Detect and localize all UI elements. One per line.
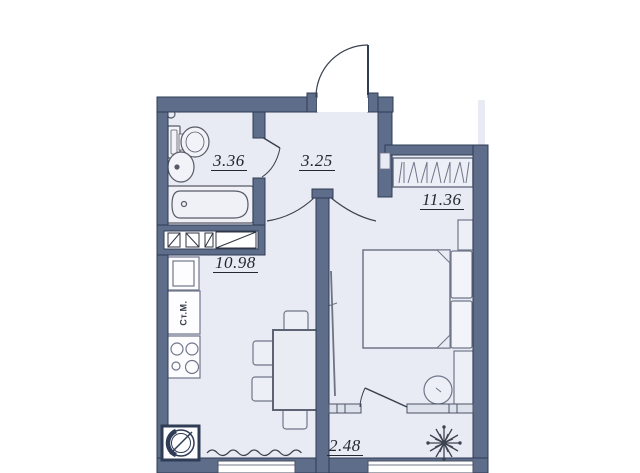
chair-icon (283, 408, 307, 429)
wall-niche (380, 153, 390, 169)
chair-icon (284, 311, 308, 331)
room-area-label-bathroom: 3.36 (211, 152, 247, 171)
room-area-label-hallway: 3.25 (299, 152, 335, 171)
floor-plan-canvas: 3.36 3.25 11.36 10.98 2.48 Ст.М. (0, 0, 640, 473)
dressing-table-icon (454, 351, 473, 407)
wall-left (157, 97, 168, 473)
bathroom-sink-icon (168, 152, 194, 182)
bathtub-icon (167, 186, 253, 223)
wardrobe-icon (393, 158, 473, 187)
room-area-label-bedroom: 11.36 (420, 191, 464, 210)
wall-partition (316, 191, 329, 473)
stool-icon (424, 376, 452, 404)
entry-door-icon (316, 45, 368, 97)
window-icon (407, 404, 473, 413)
room-area-label-balcony: 2.48 (327, 437, 363, 456)
washing-machine-label: Ст.М. (167, 291, 200, 334)
room-area-label-kitchen-living: 10.98 (213, 254, 258, 273)
exterior-notch (392, 88, 478, 145)
kitchen-sink-icon (162, 426, 199, 460)
wall-right (473, 145, 488, 473)
nightstand-icon (458, 220, 473, 250)
dining-table-icon (273, 330, 320, 410)
wall-bathroom-jamb-lower (253, 178, 265, 226)
vent-shaft-icon (164, 231, 258, 249)
chair-icon (252, 377, 275, 401)
wall-bathroom-jamb-upper (253, 112, 265, 138)
window-icon (368, 461, 473, 473)
fridge-icon (168, 257, 199, 290)
toilet-icon (168, 126, 209, 158)
stove-icon (167, 336, 200, 378)
wall-partition-post (312, 189, 333, 198)
pillow-icon (451, 301, 472, 348)
pillow-icon (451, 251, 472, 298)
floor-plan-drawing (0, 0, 640, 473)
entry-jamb-right (368, 93, 378, 112)
window-icon (218, 461, 295, 473)
entry-opening (317, 98, 368, 112)
wall-top-left (157, 97, 316, 112)
